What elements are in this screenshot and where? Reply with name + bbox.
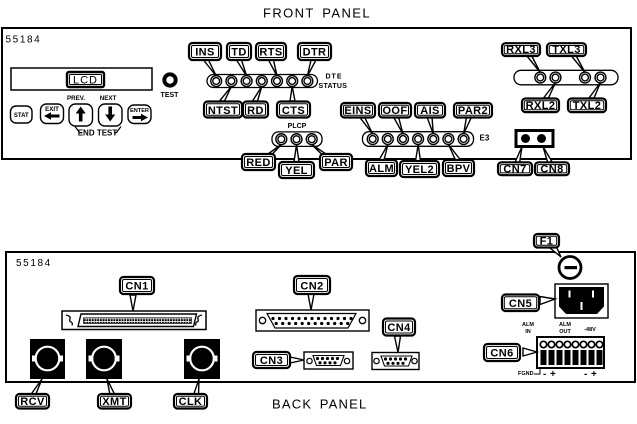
svg-text:RXL3: RXL3 <box>506 44 536 56</box>
svg-text:RED: RED <box>246 157 270 169</box>
svg-text:OUT: OUT <box>559 329 571 335</box>
svg-text:EXIT: EXIT <box>45 106 59 113</box>
svg-text:NTST: NTST <box>208 105 238 117</box>
svg-text:RD: RD <box>247 105 264 117</box>
svg-text:STAT: STAT <box>14 113 29 119</box>
svg-text:RCV: RCV <box>20 396 45 408</box>
svg-text:STATUS: STATUS <box>319 83 348 90</box>
svg-text:DTR: DTR <box>303 47 327 59</box>
svg-text:CTS: CTS <box>282 105 305 117</box>
svg-text:CN4: CN4 <box>387 322 411 334</box>
svg-text:+: + <box>591 369 597 380</box>
svg-text:CN5: CN5 <box>509 298 532 310</box>
svg-text:CN6: CN6 <box>490 348 513 360</box>
svg-text:XMT: XMT <box>102 396 126 408</box>
svg-text:TXL3: TXL3 <box>552 44 581 56</box>
svg-text:LCD: LCD <box>73 75 98 87</box>
svg-text:TXL2: TXL2 <box>573 100 602 112</box>
svg-text:CN8: CN8 <box>540 163 563 175</box>
svg-text:+: + <box>550 369 556 380</box>
svg-text:PLCP: PLCP <box>288 123 307 130</box>
svg-text:OOF: OOF <box>382 105 407 117</box>
svg-text:TD: TD <box>231 47 246 59</box>
svg-text:IN: IN <box>525 329 531 335</box>
svg-text:NEXT: NEXT <box>100 95 117 102</box>
svg-text:-: - <box>543 369 546 380</box>
svg-text:RTS: RTS <box>259 47 282 59</box>
svg-text:PAR: PAR <box>324 157 348 169</box>
svg-text:ALM: ALM <box>559 322 571 328</box>
svg-text:AIS: AIS <box>420 105 440 117</box>
svg-text:CN3: CN3 <box>260 355 283 367</box>
svg-text:BPV: BPV <box>447 163 471 175</box>
svg-text:PREV.: PREV. <box>67 95 85 102</box>
svg-text:DTE: DTE <box>326 73 343 80</box>
svg-text:CLK: CLK <box>179 396 203 408</box>
svg-text:ALM: ALM <box>369 163 394 175</box>
svg-text:-: - <box>584 369 587 380</box>
svg-text:EINS: EINS <box>344 105 371 117</box>
svg-text:ENTER: ENTER <box>130 108 149 114</box>
svg-text:F1: F1 <box>540 235 554 247</box>
svg-text:TEST: TEST <box>161 92 180 99</box>
svg-text:-48V: -48V <box>584 327 596 333</box>
svg-text:CN1: CN1 <box>125 281 148 293</box>
svg-text:E3: E3 <box>480 134 490 143</box>
svg-text:CN2: CN2 <box>300 281 323 293</box>
svg-text:CN7: CN7 <box>503 163 526 175</box>
svg-text:END TEST: END TEST <box>78 129 118 138</box>
svg-text:INS: INS <box>195 47 215 59</box>
svg-text:55184: 55184 <box>16 258 52 269</box>
svg-text:55184: 55184 <box>6 35 42 46</box>
svg-text:YEL: YEL <box>285 165 308 177</box>
svg-text:YEL2: YEL2 <box>405 164 434 176</box>
svg-text:PAR2: PAR2 <box>458 105 488 117</box>
svg-text:BACKPANEL: BACKPANEL <box>272 397 367 412</box>
svg-text:FGND: FGND <box>518 371 534 377</box>
svg-text:ALM: ALM <box>522 322 534 328</box>
svg-text:RXL2: RXL2 <box>526 100 556 112</box>
